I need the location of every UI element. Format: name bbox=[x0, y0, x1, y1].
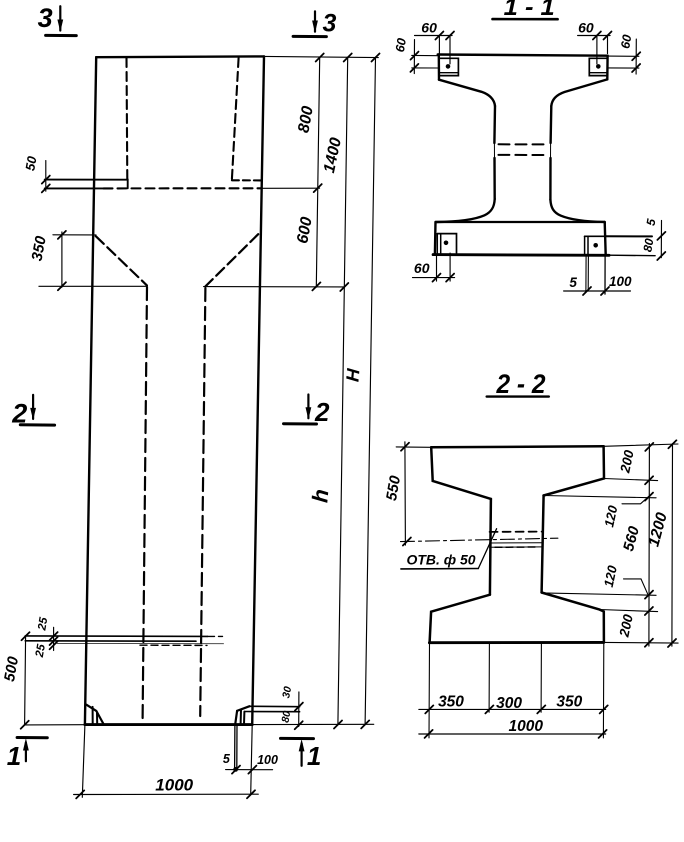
svg-text:1: 1 bbox=[307, 741, 321, 771]
svg-text:25: 25 bbox=[34, 643, 48, 659]
svg-text:2: 2 bbox=[314, 397, 330, 427]
svg-text:350: 350 bbox=[556, 693, 582, 710]
svg-text:30: 30 bbox=[280, 685, 294, 699]
svg-text:5: 5 bbox=[223, 752, 231, 766]
svg-text:5: 5 bbox=[569, 275, 577, 290]
svg-text:60: 60 bbox=[414, 260, 430, 276]
svg-text:350: 350 bbox=[438, 693, 464, 710]
svg-text:80: 80 bbox=[640, 237, 656, 253]
svg-text:1: 1 bbox=[7, 741, 21, 771]
svg-text:3: 3 bbox=[38, 3, 53, 33]
svg-text:2 - 2: 2 - 2 bbox=[496, 369, 546, 399]
svg-text:300: 300 bbox=[496, 695, 522, 712]
svg-text:1000: 1000 bbox=[508, 718, 543, 735]
svg-text:3: 3 bbox=[322, 9, 336, 37]
svg-text:60: 60 bbox=[393, 37, 409, 53]
svg-text:2: 2 bbox=[11, 398, 27, 428]
svg-text:ОТВ. ф 50: ОТВ. ф 50 bbox=[407, 553, 476, 568]
svg-text:1000: 1000 bbox=[155, 776, 193, 795]
svg-text:25: 25 bbox=[36, 616, 50, 632]
svg-text:60: 60 bbox=[578, 20, 594, 36]
svg-text:h: h bbox=[307, 488, 333, 504]
svg-text:100: 100 bbox=[609, 274, 632, 289]
svg-text:60: 60 bbox=[618, 34, 634, 50]
svg-text:100: 100 bbox=[257, 753, 278, 767]
svg-text:60: 60 bbox=[421, 20, 437, 36]
svg-text:80: 80 bbox=[280, 710, 294, 724]
